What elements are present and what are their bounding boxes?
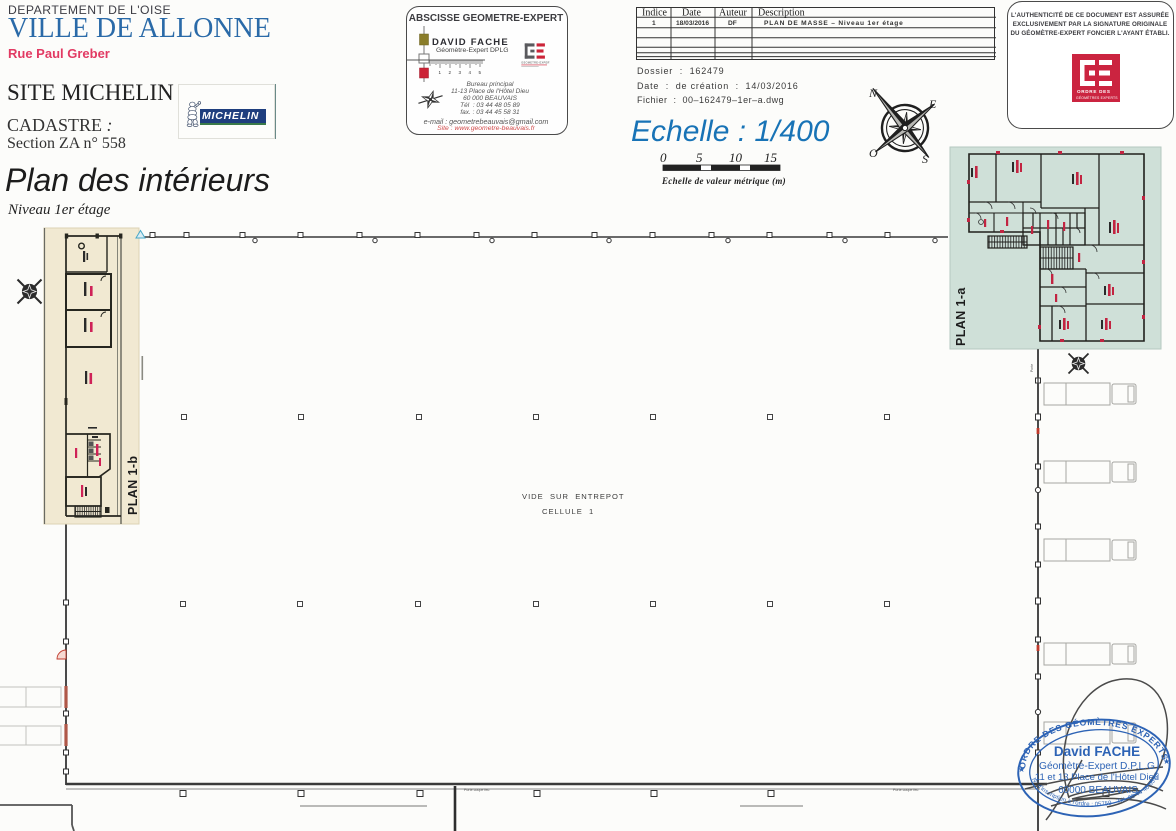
svg-text:PLAN 1-a: PLAN 1-a	[954, 287, 968, 346]
svg-text:60000 BEAUVAIS: 60000 BEAUVAIS	[1058, 785, 1138, 796]
svg-text:★: ★	[1163, 757, 1170, 766]
svg-text:Porte: Porte	[1030, 364, 1034, 372]
svg-text:Géomètre-Expert D.P.L.G: Géomètre-Expert D.P.L.G	[1039, 761, 1155, 772]
svg-text:11 et 13 Place de l'Hôtel Dieu: 11 et 13 Place de l'Hôtel Dieu	[1035, 772, 1159, 783]
svg-text:Porte coupe feu: Porte coupe feu	[464, 788, 489, 792]
svg-text:★: ★	[1018, 765, 1025, 774]
svg-text:Porte coupe feu: Porte coupe feu	[893, 788, 918, 792]
svg-text:PLAN 1-b: PLAN 1-b	[126, 456, 140, 515]
svg-text:David FACHE: David FACHE	[1054, 744, 1140, 759]
